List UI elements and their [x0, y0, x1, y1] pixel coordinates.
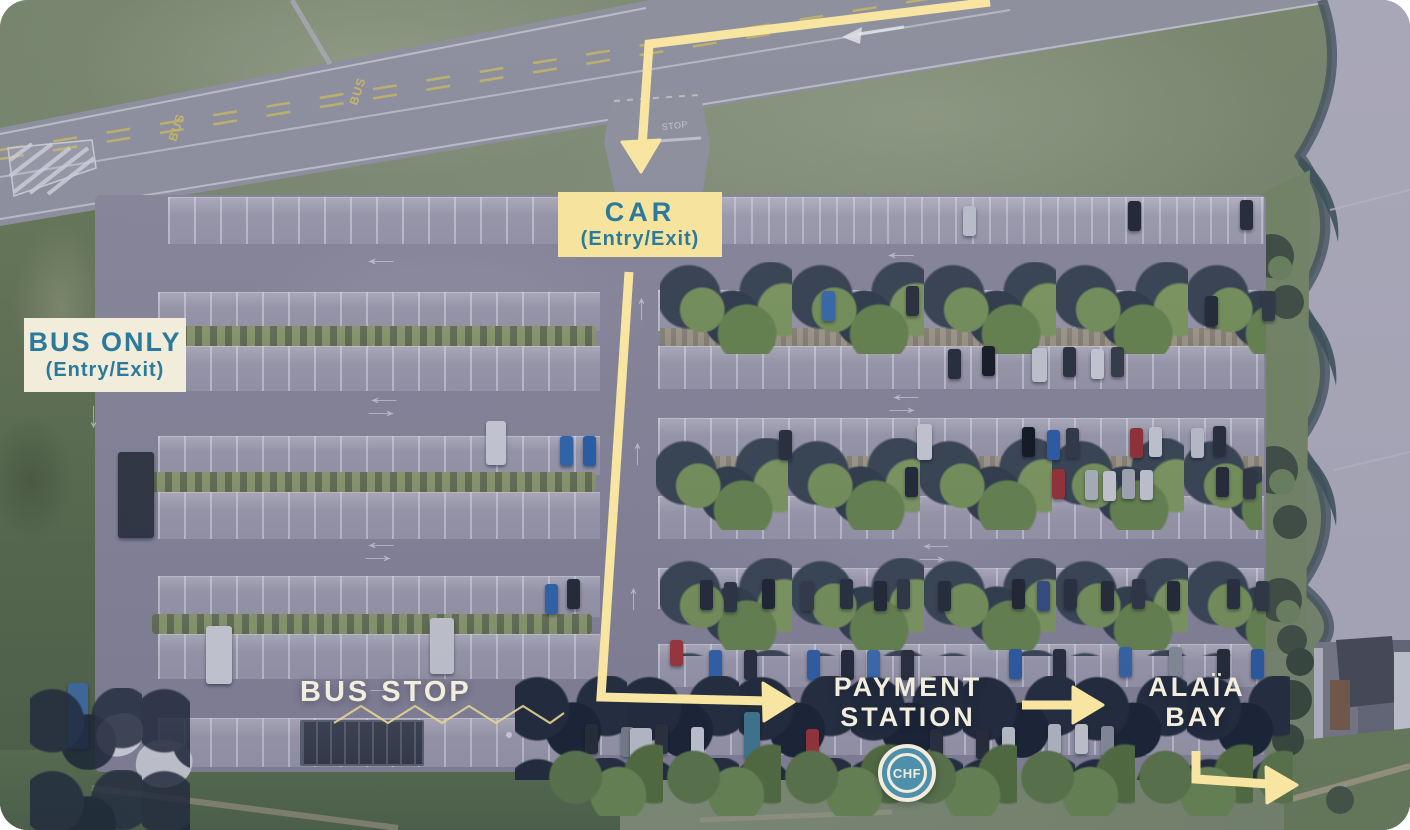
- alaia-bay-line2: BAY: [1135, 702, 1259, 732]
- route-arrowhead-right: [1266, 767, 1297, 803]
- bus-entry-subtitle: (Entry/Exit): [46, 358, 165, 382]
- payment-station-line2: STATION: [820, 702, 996, 732]
- chf-badge-text: CHF: [887, 753, 927, 793]
- aerial-parking-map: BUS BUS STOP: [0, 0, 1410, 830]
- bus-entry-label: BUS ONLY (Entry/Exit): [24, 318, 186, 392]
- alaia-bay-label: ALAÏA BAY: [1135, 672, 1259, 732]
- payment-station-line1: PAYMENT: [820, 672, 996, 702]
- chf-currency-badge: CHF: [878, 744, 936, 802]
- payment-station-label: PAYMENT STATION: [820, 672, 996, 732]
- bus-stop-label: BUS STOP: [300, 676, 472, 709]
- alaia-bay-line1: ALAÏA: [1135, 672, 1259, 702]
- car-entry-subtitle: (Entry/Exit): [581, 227, 700, 251]
- bus-entry-title: BUS ONLY: [28, 328, 181, 358]
- route-arrowhead-down: [622, 140, 660, 172]
- route-arrowhead-right: [1073, 687, 1103, 723]
- route-arrowhead-right: [763, 683, 794, 721]
- car-entry-title: CAR: [605, 198, 676, 228]
- car-entry-label: CAR (Entry/Exit): [558, 192, 722, 257]
